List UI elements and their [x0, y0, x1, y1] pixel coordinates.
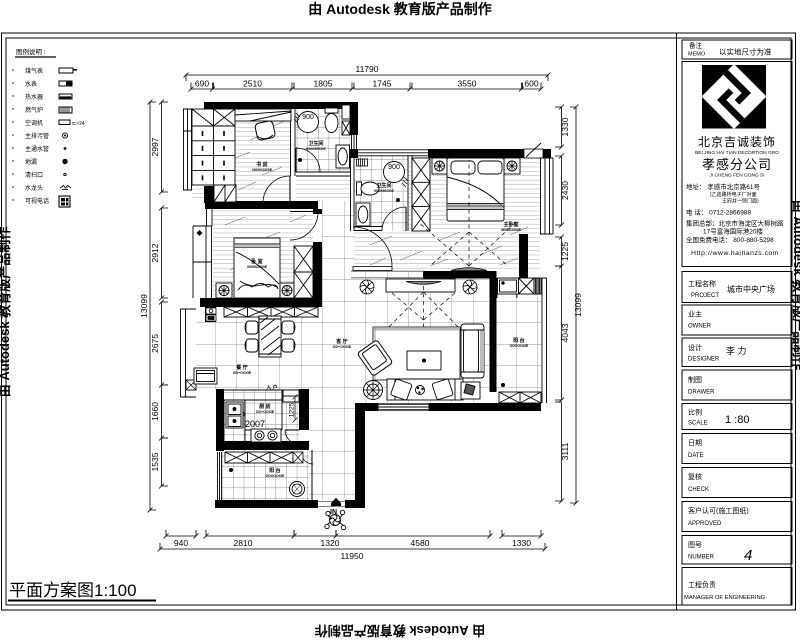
svg-text:Http://www.haitianzs.com: Http://www.haitianzs.com: [691, 250, 779, 257]
svg-text:940: 940: [174, 538, 188, 548]
svg-text:1745: 1745: [373, 79, 392, 89]
svg-text:比例: 比例: [688, 408, 702, 417]
svg-text:卧 室: 卧 室: [251, 258, 262, 265]
svg-text:煤气表: 煤气表: [25, 67, 43, 75]
svg-text:11790: 11790: [355, 64, 378, 74]
svg-text:4: 4: [744, 547, 752, 564]
svg-text:城市中央广场: 城市中央广场: [727, 284, 775, 294]
svg-text:2675: 2675: [150, 334, 160, 353]
svg-text:燃气炉: 燃气炉: [25, 106, 43, 114]
svg-text:王府井一侧门面): 王府井一侧门面): [722, 198, 759, 205]
svg-text:MEMO: MEMO: [688, 52, 706, 58]
svg-text:图号: 图号: [688, 541, 702, 549]
svg-text:客 厅: 客 厅: [335, 338, 347, 345]
svg-text:卫生间: 卫生间: [308, 140, 323, 147]
svg-text:清扫口: 清扫口: [25, 171, 43, 179]
svg-text:阳 台: 阳 台: [269, 467, 280, 474]
svg-text:CHECK: CHECK: [688, 487, 709, 493]
svg-text:2007: 2007: [245, 419, 265, 429]
svg-text:OD+OOXIE: OD+OOXIE: [233, 371, 252, 375]
svg-text:3600X3300E: 3600X3300E: [501, 228, 522, 232]
svg-text:11950: 11950: [340, 551, 363, 561]
svg-text:BEI JING HAI TIAN DECORTION GR: BEI JING HAI TIAN DECORTION GRO: [695, 150, 779, 156]
svg-text:APPROVED: APPROVED: [688, 521, 722, 527]
svg-text:书 房: 书 房: [256, 161, 267, 168]
svg-text:设计: 设计: [688, 343, 702, 352]
svg-text:工程负责: 工程负责: [688, 580, 716, 589]
svg-text:900: 900: [302, 114, 314, 121]
svg-text:2510: 2510: [243, 79, 262, 89]
svg-text:2912: 2912: [150, 243, 160, 262]
svg-text:3550: 3550: [458, 79, 477, 89]
svg-text:2997: 2997: [150, 137, 160, 156]
svg-text:业主: 业主: [688, 310, 702, 319]
svg-text:平面方案图1:100: 平面方案图1:100: [9, 581, 137, 600]
svg-text:集团总部：北京市海淀区大柳树路: 集团总部：北京市海淀区大柳树路: [686, 219, 784, 228]
svg-text:600: 600: [524, 79, 538, 89]
svg-text:⊏×24: ⊏×24: [72, 121, 85, 127]
svg-text:厨 房: 厨 房: [259, 403, 270, 410]
svg-text:孝感分公司: 孝感分公司: [702, 157, 772, 172]
svg-text:OWNER: OWNER: [688, 324, 712, 330]
svg-text:1225: 1225: [560, 242, 570, 261]
svg-text:电 话： 0712-2866988: 电 话： 0712-2866988: [686, 208, 751, 217]
svg-text:3000X3300E: 3000X3300E: [247, 265, 268, 269]
svg-text:1 :80: 1 :80: [725, 414, 749, 426]
svg-text:制图: 制图: [688, 375, 702, 384]
svg-text:水龙头: 水龙头: [25, 184, 43, 192]
svg-text:全国免费电话： 800-880-5298: 全国免费电话： 800-880-5298: [686, 235, 774, 244]
svg-text:ODXOOXIE: ODXOOXIE: [510, 344, 529, 348]
svg-text:备注: 备注: [689, 41, 703, 50]
svg-text:1320: 1320: [321, 538, 340, 548]
svg-text:DESIGNER: DESIGNER: [688, 357, 720, 363]
svg-text:3111: 3111: [560, 442, 570, 460]
svg-text:图例说明 :: 图例说明 :: [16, 47, 46, 56]
svg-text:北京吉诚装饰: 北京吉诚装饰: [698, 135, 776, 149]
svg-text:由 Autodesk 教育版产品制作: 由 Autodesk 教育版产品制作: [315, 623, 485, 638]
svg-text:JI CHENG FEN GONG SI: JI CHENG FEN GONG SI: [709, 173, 764, 179]
svg-text:MANAGER OF ENGINEERING: MANAGER OF ENGINEERING: [684, 595, 766, 601]
svg-text:工程名称: 工程名称: [688, 279, 716, 288]
svg-text:PROJECT: PROJECT: [691, 293, 719, 299]
svg-text:1330: 1330: [512, 538, 531, 548]
svg-text:ODXOOXIE: ODXOOXIE: [266, 474, 285, 478]
svg-text:1225: 1225: [289, 402, 296, 417]
svg-text:李 力: 李 力: [726, 345, 747, 356]
svg-text:900X900XIE: 900X900XIE: [374, 189, 394, 193]
svg-text:1805: 1805: [314, 79, 333, 89]
svg-text:复核: 复核: [688, 472, 702, 481]
svg-text:DATE: DATE: [688, 453, 704, 459]
svg-text:1660: 1660: [150, 402, 160, 421]
svg-text:1330: 1330: [560, 117, 570, 136]
svg-text:水表: 水表: [25, 80, 37, 88]
svg-text:主通水管: 主通水管: [25, 145, 49, 153]
svg-text:以实地尺寸为准: 以实地尺寸为准: [719, 47, 772, 57]
svg-text:日期: 日期: [688, 439, 702, 447]
svg-text:17号富海国际港20楼: 17号富海国际港20楼: [703, 227, 763, 236]
svg-text:900X900XIE: 900X900XIE: [306, 147, 326, 151]
svg-text:900: 900: [388, 164, 400, 171]
svg-text:DRAWER: DRAWER: [688, 390, 715, 396]
svg-text:2430: 2430: [560, 181, 570, 200]
svg-text:4043: 4043: [560, 323, 570, 342]
svg-text:入 户: 入 户: [266, 384, 277, 391]
svg-text:OD+OOXIE: OD+OOXIE: [256, 410, 275, 414]
svg-text:主卧室: 主卧室: [503, 221, 518, 228]
svg-text:可视电话: 可视电话: [25, 197, 49, 205]
svg-text:由 Autodesk 教育版产品制作: 由 Autodesk 教育版产品制作: [308, 1, 492, 17]
svg-text:1535: 1535: [150, 452, 160, 471]
svg-text:2600X3300E: 2600X3300E: [252, 168, 273, 172]
svg-text:空调机: 空调机: [25, 119, 43, 127]
svg-text:(乙迪路桥电子厂对面: (乙迪路桥电子厂对面: [710, 191, 757, 198]
svg-text:地址： 孝感市北京路61号: 地址： 孝感市北京路61号: [686, 182, 761, 191]
svg-text:阳 台: 阳 台: [513, 337, 524, 344]
svg-text:热水器: 热水器: [25, 93, 43, 101]
svg-text:OD+OOXIE: OD+OOXIE: [333, 345, 352, 349]
svg-text:地漏: 地漏: [25, 158, 37, 166]
svg-text:SCALE: SCALE: [688, 421, 708, 427]
svg-text:690: 690: [195, 79, 209, 89]
svg-text:4580: 4580: [411, 538, 430, 548]
svg-text:2810: 2810: [234, 538, 253, 548]
svg-text:13099: 13099: [139, 294, 149, 318]
svg-text:客户认可(施工图纸): 客户认可(施工图纸): [688, 506, 749, 515]
svg-text:餐 厅: 餐 厅: [235, 364, 247, 371]
svg-text:主排污管: 主排污管: [25, 132, 49, 140]
svg-text:13099: 13099: [573, 293, 583, 317]
svg-text:卫生间: 卫生间: [376, 182, 391, 189]
svg-text:NUMBER: NUMBER: [688, 555, 715, 561]
